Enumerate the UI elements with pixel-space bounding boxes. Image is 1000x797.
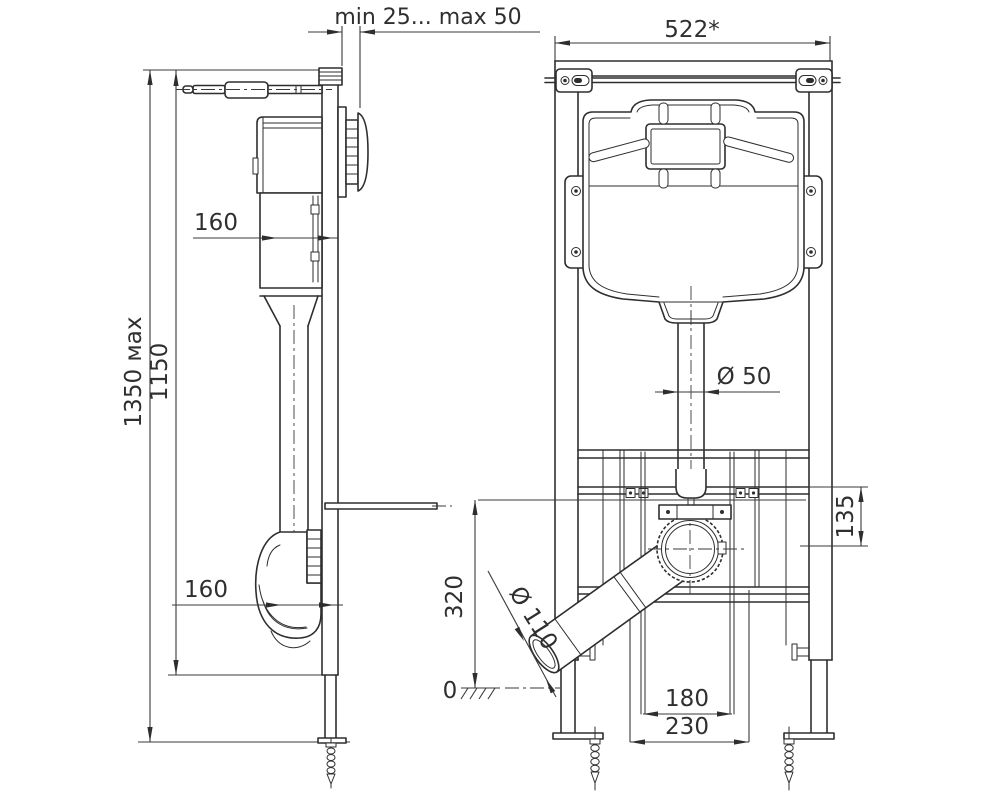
installation-frame-technical-drawing: 1350 мах 1150 min 25... max 50 — [0, 0, 1000, 797]
zero-level-mark: 0 — [443, 678, 560, 704]
anchor-screw-side — [326, 738, 336, 788]
dim-label-160-top: 160 — [194, 210, 238, 236]
dim-wall-offset: min 25... max 50 — [308, 5, 540, 108]
pan-fixing-rod-side — [325, 503, 452, 509]
wall-brackets — [545, 69, 840, 92]
dim-label-d50: Ø 50 — [717, 364, 772, 390]
dim-label-wall-offset: min 25... max 50 — [334, 5, 521, 30]
dim-flush-pipe-50: Ø 50 — [655, 364, 780, 395]
front-view: 522* — [442, 17, 868, 790]
dim-label-320: 320 — [442, 575, 468, 619]
dim-label-160-bottom: 160 — [184, 577, 228, 603]
flush-pipe-side — [280, 305, 308, 540]
outlet-bend-side — [256, 530, 321, 648]
dim-label-1150: 1150 — [147, 343, 173, 402]
water-supply-valve — [176, 82, 332, 98]
dim-outlet-pipe-110: Ø 110 — [488, 571, 562, 697]
dim-studs-180: 180 — [643, 686, 732, 717]
drawing-canvas: 1350 мах 1150 min 25... max 50 — [0, 0, 1000, 797]
dim-label-135: 135 — [833, 495, 859, 539]
dim-width-522: 522* — [555, 17, 830, 61]
dim-label-1350-max: 1350 мах — [121, 317, 147, 428]
side-view: 1350 мах 1150 min 25... max 50 — [121, 5, 540, 788]
dim-outlet-width-230: 230 — [630, 714, 749, 745]
dim-label-230: 230 — [665, 714, 709, 740]
dim-outlet-drop-135: 135 — [800, 487, 868, 546]
dim-label-522: 522* — [664, 17, 719, 43]
dim-label-180: 180 — [665, 686, 709, 712]
flush-plate-side — [338, 107, 368, 197]
cistern-side — [253, 117, 322, 326]
cistern-front — [583, 100, 804, 330]
leg-side — [318, 675, 346, 788]
dim-label-zero: 0 — [443, 678, 458, 704]
